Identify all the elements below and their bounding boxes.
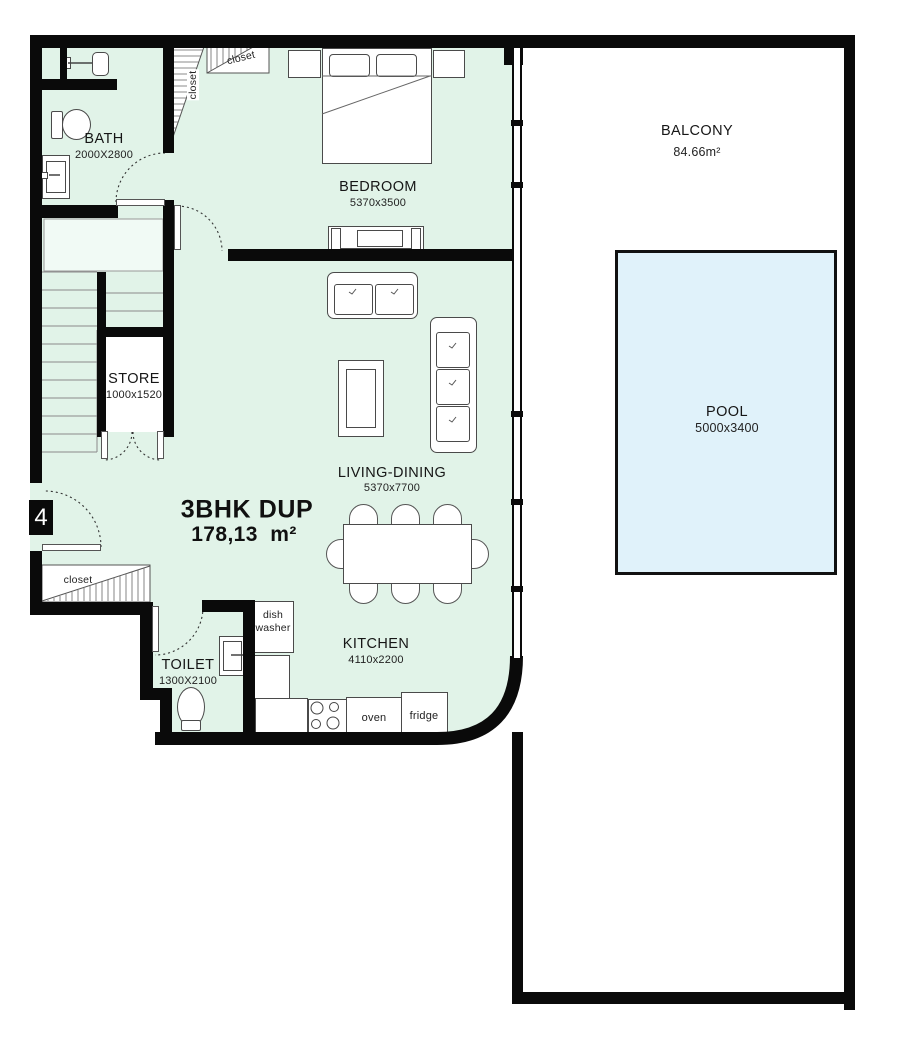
- bedroom-door-arc: [177, 206, 222, 251]
- toilet-door-arc: [155, 607, 203, 655]
- wall-toilet-top: [202, 600, 255, 612]
- window-wall: [512, 48, 522, 658]
- bedroom-door: [174, 205, 181, 250]
- window-mullion: [511, 411, 523, 417]
- balcony-label: BALCONY: [661, 123, 733, 139]
- plan-area: 178,13 m²: [191, 523, 297, 547]
- closet-label: closet: [187, 70, 199, 101]
- floor-plan: 4 BATH 2000X2800 BEDROOM 5370x3500 BALCO…: [0, 0, 900, 1047]
- plan-title: 3BHK DUP: [181, 496, 314, 525]
- dishwasher-label-line1: dish: [263, 609, 283, 621]
- oven-label: oven: [362, 712, 387, 724]
- kitchen-dims: 4110x2200: [348, 654, 403, 666]
- unit-number: 4: [34, 504, 47, 532]
- bath-label: BATH: [84, 131, 123, 147]
- wall-bath-right: [163, 35, 174, 153]
- window-mullion: [511, 182, 523, 188]
- living-dining-dims: 5370x7700: [364, 482, 420, 494]
- wall-toilet-left-lower: [160, 688, 172, 745]
- sofa-tick-marks: [349, 289, 456, 422]
- kitchen-label: KITCHEN: [343, 636, 409, 652]
- wall-toilet-right: [243, 600, 255, 743]
- entrance-door: [42, 544, 101, 551]
- wall-left-stairs: [30, 218, 42, 483]
- toilet-label: TOILET: [162, 657, 215, 673]
- wall-store-left: [97, 327, 106, 437]
- bath-dims: 2000X2800: [75, 149, 133, 161]
- bed-sheet-lines: [322, 76, 432, 114]
- wall-balcony-right: [844, 35, 855, 1010]
- wall-stairs-center: [97, 272, 106, 330]
- unit-number-plate: 4: [29, 500, 53, 535]
- window-mullion: [511, 499, 523, 505]
- dishwasher-label: dish washer: [255, 609, 290, 635]
- closet-label: closet: [64, 574, 93, 586]
- wall-top: [30, 35, 855, 48]
- stove-burners-icon: [311, 702, 339, 729]
- stair-landing: [44, 219, 163, 271]
- wall-store-right: [163, 200, 174, 437]
- window-mullion: [511, 120, 523, 126]
- store-label: STORE: [108, 371, 160, 387]
- toilet-door: [152, 606, 159, 652]
- store-door-arc-left: [104, 432, 132, 460]
- wall-shower-horiz: [30, 79, 117, 90]
- wall-left-upper: [30, 35, 42, 218]
- fridge-label: fridge: [410, 710, 439, 722]
- entrance-door-arc: [45, 491, 101, 547]
- pool-dims: 5000x3400: [695, 421, 759, 435]
- plan-linework: [0, 0, 900, 1047]
- wall-store-top: [97, 327, 173, 337]
- wall-closet-bottom: [30, 602, 153, 615]
- store-door-right: [157, 431, 164, 459]
- toilet-dims: 1300X2100: [159, 675, 217, 687]
- balcony-dims: 84.66m²: [673, 145, 720, 159]
- store-door-left: [101, 431, 108, 459]
- wall-balcony-bottom: [513, 992, 855, 1004]
- wall-bath-bottom: [30, 205, 118, 218]
- pool-label: POOL: [706, 404, 748, 420]
- bedroom-dims: 5370x3500: [350, 197, 406, 209]
- window-mullion: [511, 586, 523, 592]
- dishwasher-label-line2: washer: [255, 622, 290, 634]
- living-dining-label: LIVING-DINING: [338, 465, 446, 481]
- wall-bedroom-divider: [228, 249, 512, 261]
- bath-door: [116, 199, 165, 206]
- bedroom-label: BEDROOM: [339, 179, 417, 195]
- wall-balcony-left: [512, 732, 523, 1004]
- store-dims: 1000x1520: [106, 389, 162, 401]
